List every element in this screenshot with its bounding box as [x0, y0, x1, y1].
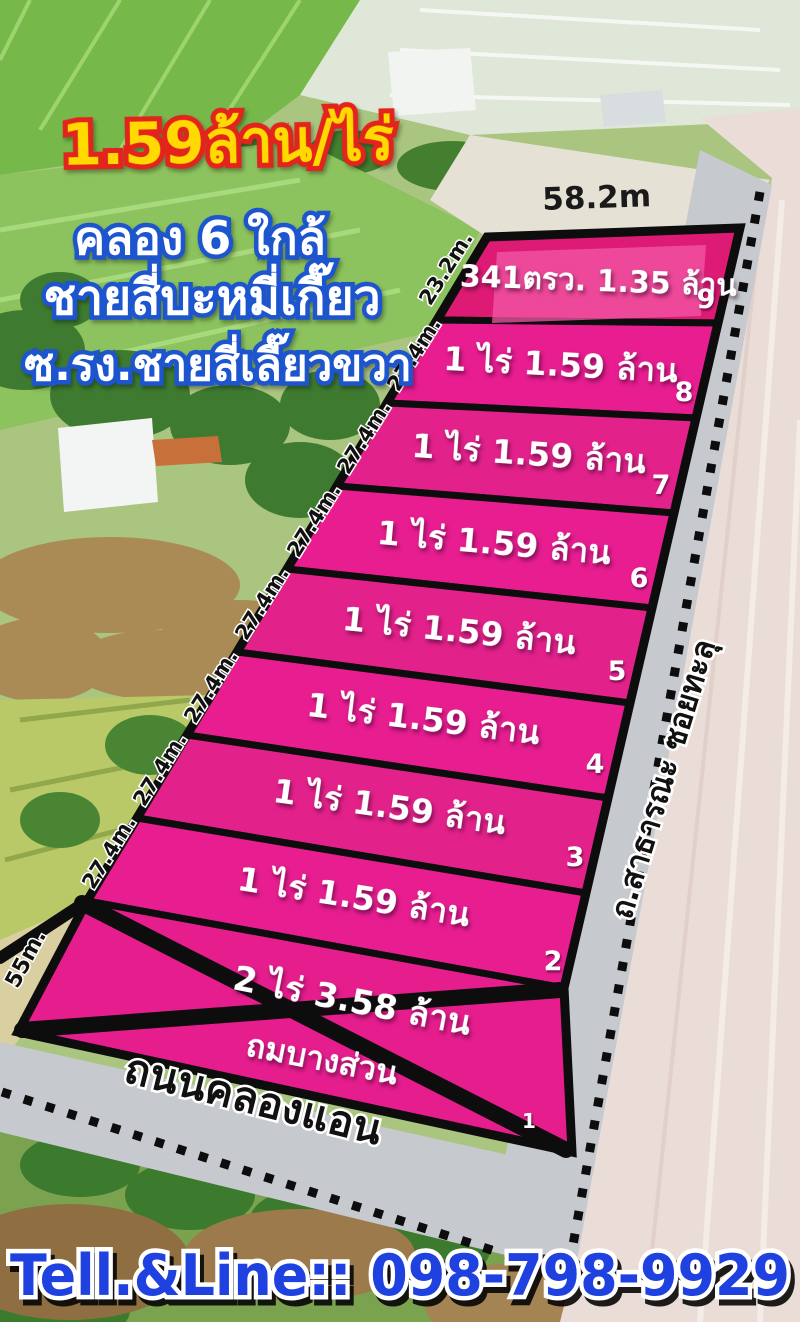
plot-6-number: 6: [630, 563, 649, 594]
location-line-2: ชายสี่บะหมี่เกี๊ยว: [43, 262, 380, 326]
plot-8-number: 8: [675, 377, 694, 408]
land-listing-poster: 341ตรว. 1.35 ล้าน 1 ไร่ 1.59 ล้าน 1 ไร่ …: [0, 0, 800, 1322]
plot-3-number: 3: [566, 842, 585, 873]
plot-2-number: 2: [544, 946, 563, 977]
phone-line: Tell.&Line:: 098-798-9929: [10, 1243, 790, 1309]
plot-1-number: 1: [522, 1109, 536, 1133]
top-width-label: 58.2m: [542, 178, 652, 218]
plot-7-number: 7: [652, 470, 671, 501]
plot-9-number: 9: [697, 284, 716, 315]
aerial-photo-canvas: 341ตรว. 1.35 ล้าน 1 ไร่ 1.59 ล้าน 1 ไร่ …: [0, 0, 800, 1322]
plot-4-number: 4: [586, 749, 605, 780]
location-line-1: คลอง 6 ใกล้: [74, 211, 326, 265]
house-white-roof: [58, 418, 158, 512]
location-line-3: ซ.รง.ชายสี่เลี๊ยวขวา: [24, 332, 412, 391]
price-headline: 1.59ล้าน/ไร่: [61, 105, 395, 179]
plot-5-number: 5: [608, 656, 627, 687]
house-orange-roof: [152, 436, 222, 466]
warehouse-roof: [388, 48, 476, 116]
